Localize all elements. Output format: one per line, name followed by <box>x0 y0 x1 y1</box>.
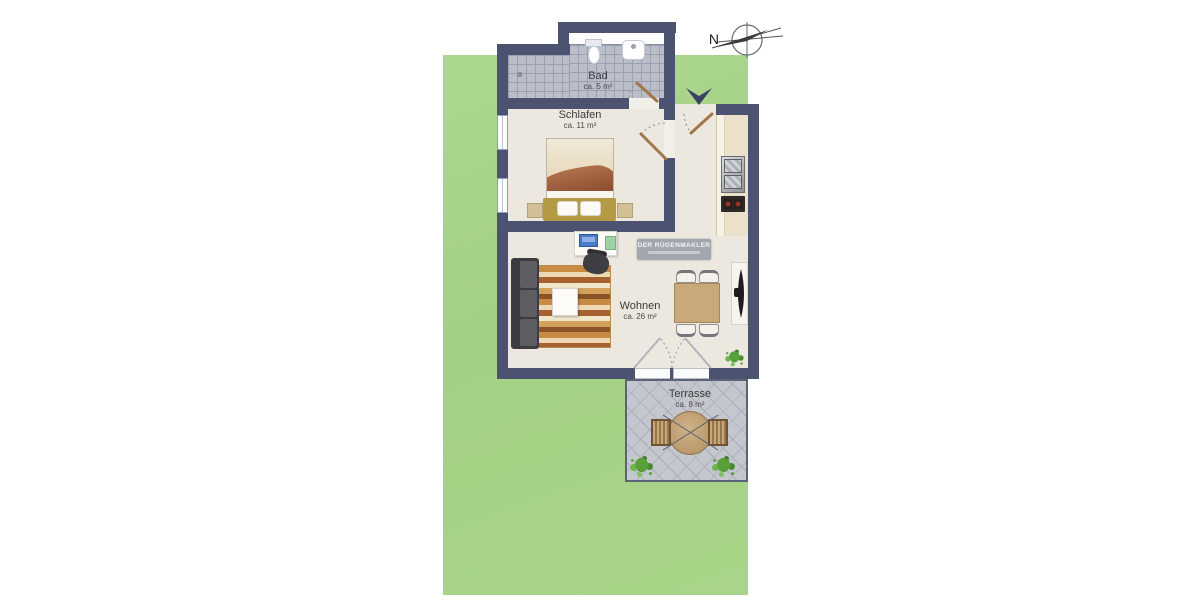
nightstand-icon <box>527 203 543 218</box>
plant-icon <box>722 345 746 367</box>
compass-circle <box>732 25 762 55</box>
bath-door-threshold <box>629 98 659 109</box>
pillow-icon <box>580 201 601 216</box>
compass-north-label: N <box>701 31 719 47</box>
terrace-door-nub-left <box>632 368 635 379</box>
sofa-cushion <box>520 290 537 317</box>
wall-south <box>497 368 759 379</box>
sideboard-icon <box>731 262 748 325</box>
stove-icon <box>721 196 745 212</box>
garden-chair-icon <box>708 419 728 446</box>
sink-basin <box>724 175 742 189</box>
shrub-icon <box>626 450 656 478</box>
terrace-door-nub-right <box>709 368 712 379</box>
kitchen-sink-icon <box>721 156 745 193</box>
basin-drain-icon <box>631 44 636 49</box>
dining-chair-icon <box>676 270 696 283</box>
desk-pad-icon <box>605 236 616 250</box>
garden-table-icon <box>668 411 712 455</box>
toilet-icon <box>588 46 600 64</box>
compass-needle <box>712 30 768 48</box>
sink-basin <box>724 159 742 173</box>
compass-needle-line <box>712 28 781 48</box>
terrace-door-nub-mid <box>670 368 673 379</box>
dining-chair-icon <box>699 324 719 337</box>
laptop-screen <box>582 237 595 242</box>
compass-axis-horizontal <box>717 36 783 42</box>
pillow-icon <box>557 201 578 216</box>
terrace-door-panel-right <box>673 368 711 379</box>
wall-bath-top <box>558 22 676 33</box>
bedroom-door-threshold <box>664 120 675 158</box>
floor-plan-canvas: Bad ca. 5 m² Schlafen ca. 11 m² Wohnen c… <box>0 0 1200 600</box>
nightstand-icon <box>617 203 633 218</box>
watermark-tagline <box>648 251 700 254</box>
sofa-cushion <box>520 261 537 288</box>
dining-chair-icon <box>676 324 696 337</box>
compass-rose-icon <box>712 22 783 58</box>
entrance-threshold <box>675 104 716 115</box>
burner-icon <box>734 199 742 209</box>
burner-icon <box>724 199 732 209</box>
sofa-icon <box>511 258 539 349</box>
bedroom-window-1 <box>497 115 508 150</box>
wall-east <box>748 104 759 379</box>
double-bed-icon <box>546 138 614 202</box>
watermark-title: DER RÜGENMAKLER <box>637 242 711 249</box>
bedroom-window-2 <box>497 178 508 213</box>
dining-chair-icon <box>699 270 719 283</box>
floor-drain-icon <box>517 72 522 77</box>
wash-basin-icon <box>622 40 645 60</box>
watermark-badge: DER RÜGENMAKLER <box>637 239 711 260</box>
laptop-icon <box>579 234 598 247</box>
sofa-cushion <box>520 319 537 346</box>
dining-table-icon <box>674 283 720 323</box>
terrace-door-panel-left <box>633 368 671 379</box>
garden-chair-icon <box>651 419 671 446</box>
bath-floor-tiles <box>569 45 665 98</box>
shrub-icon <box>708 450 738 478</box>
coffee-table-icon <box>552 288 578 316</box>
